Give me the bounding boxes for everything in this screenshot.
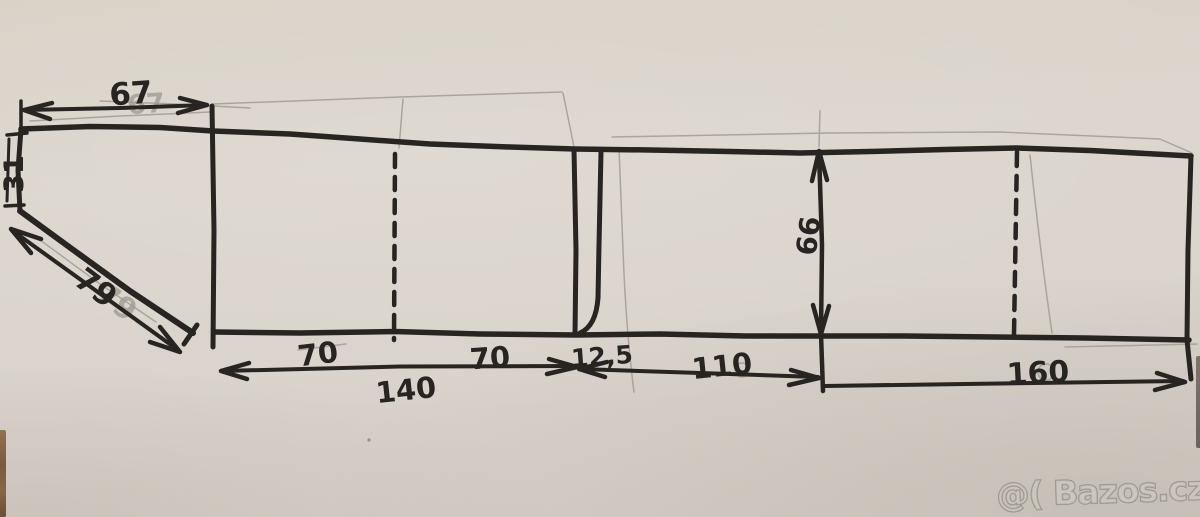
pencil-line <box>563 93 574 147</box>
watermark-bazos-text: @( Bazos.cz <box>996 468 1200 514</box>
dim-31-label: 31 <box>0 155 30 193</box>
dim-125-label: 12,5 <box>570 340 634 373</box>
pencil-line <box>819 111 820 147</box>
pencil-line <box>1065 344 1197 347</box>
strip-right-line <box>580 152 601 333</box>
pencil-line <box>213 92 562 104</box>
sketch-canvas: 67 79 <box>0 0 1200 517</box>
pencil-dot <box>367 438 370 441</box>
dim-70b-label: 70 <box>469 340 512 377</box>
pencil-line <box>1030 155 1052 333</box>
divider-solid-1 <box>212 106 214 347</box>
photo-of-sketch: 67 79 <box>0 0 1200 517</box>
dim-31-tick-top <box>7 133 27 135</box>
dim-140-line <box>222 366 575 371</box>
dim-70a-label: 70 <box>296 335 340 374</box>
dim-110-label: 110 <box>690 346 754 386</box>
dim-66-label: 66 <box>790 214 828 257</box>
divider-dashed-2 <box>1014 152 1017 334</box>
strip-left-line <box>574 150 576 335</box>
divider-dashed-1 <box>394 154 395 340</box>
dim-31-tick-bottom <box>5 205 24 206</box>
dim-67-label: 67 <box>108 75 154 114</box>
watermark: @( Bazos.cz <box>996 468 1200 514</box>
dim-160-label: 160 <box>1006 354 1070 392</box>
shape-bottom-edge <box>214 332 1189 341</box>
shape-right-edge <box>1187 156 1191 379</box>
dim-160-line <box>824 381 1183 386</box>
divider-66-arrow-line <box>819 152 823 391</box>
dim-140-label: 140 <box>374 370 438 410</box>
